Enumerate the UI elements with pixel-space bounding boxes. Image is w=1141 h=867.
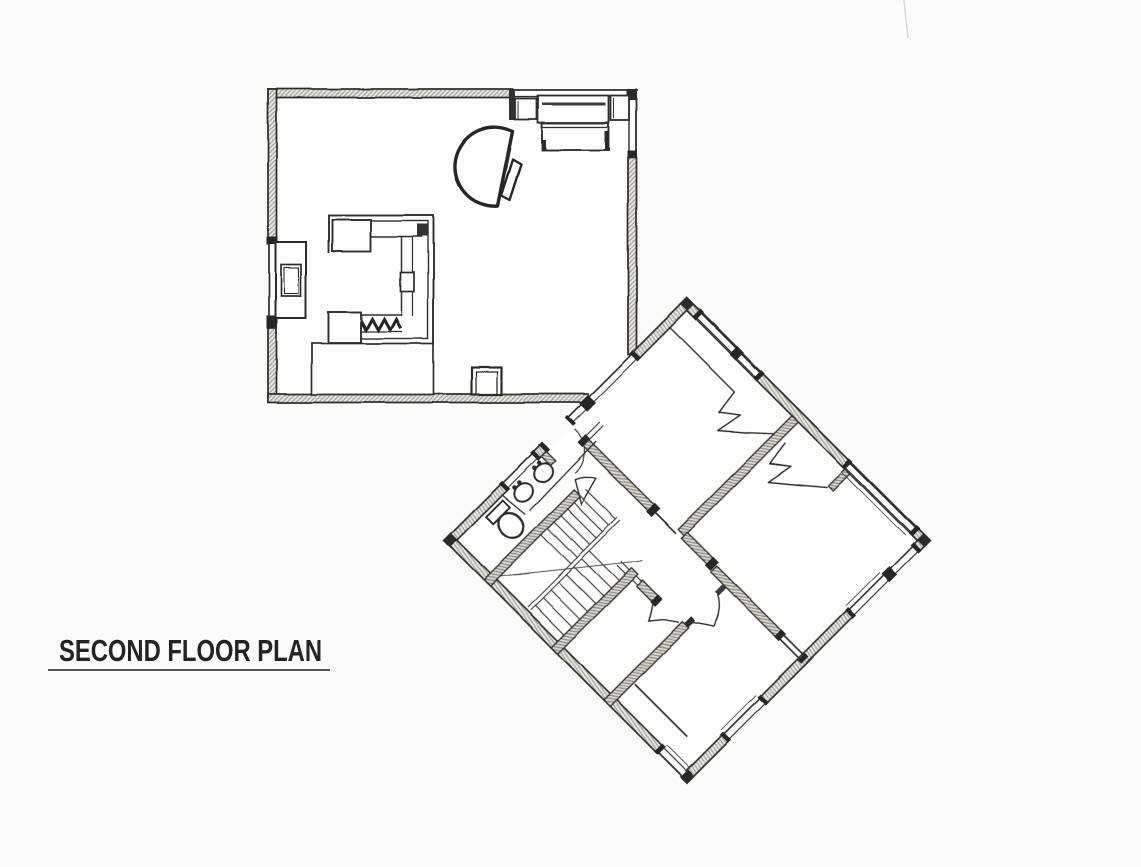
svg-text:SECOND FLOOR PLAN: SECOND FLOOR PLAN xyxy=(59,633,322,668)
